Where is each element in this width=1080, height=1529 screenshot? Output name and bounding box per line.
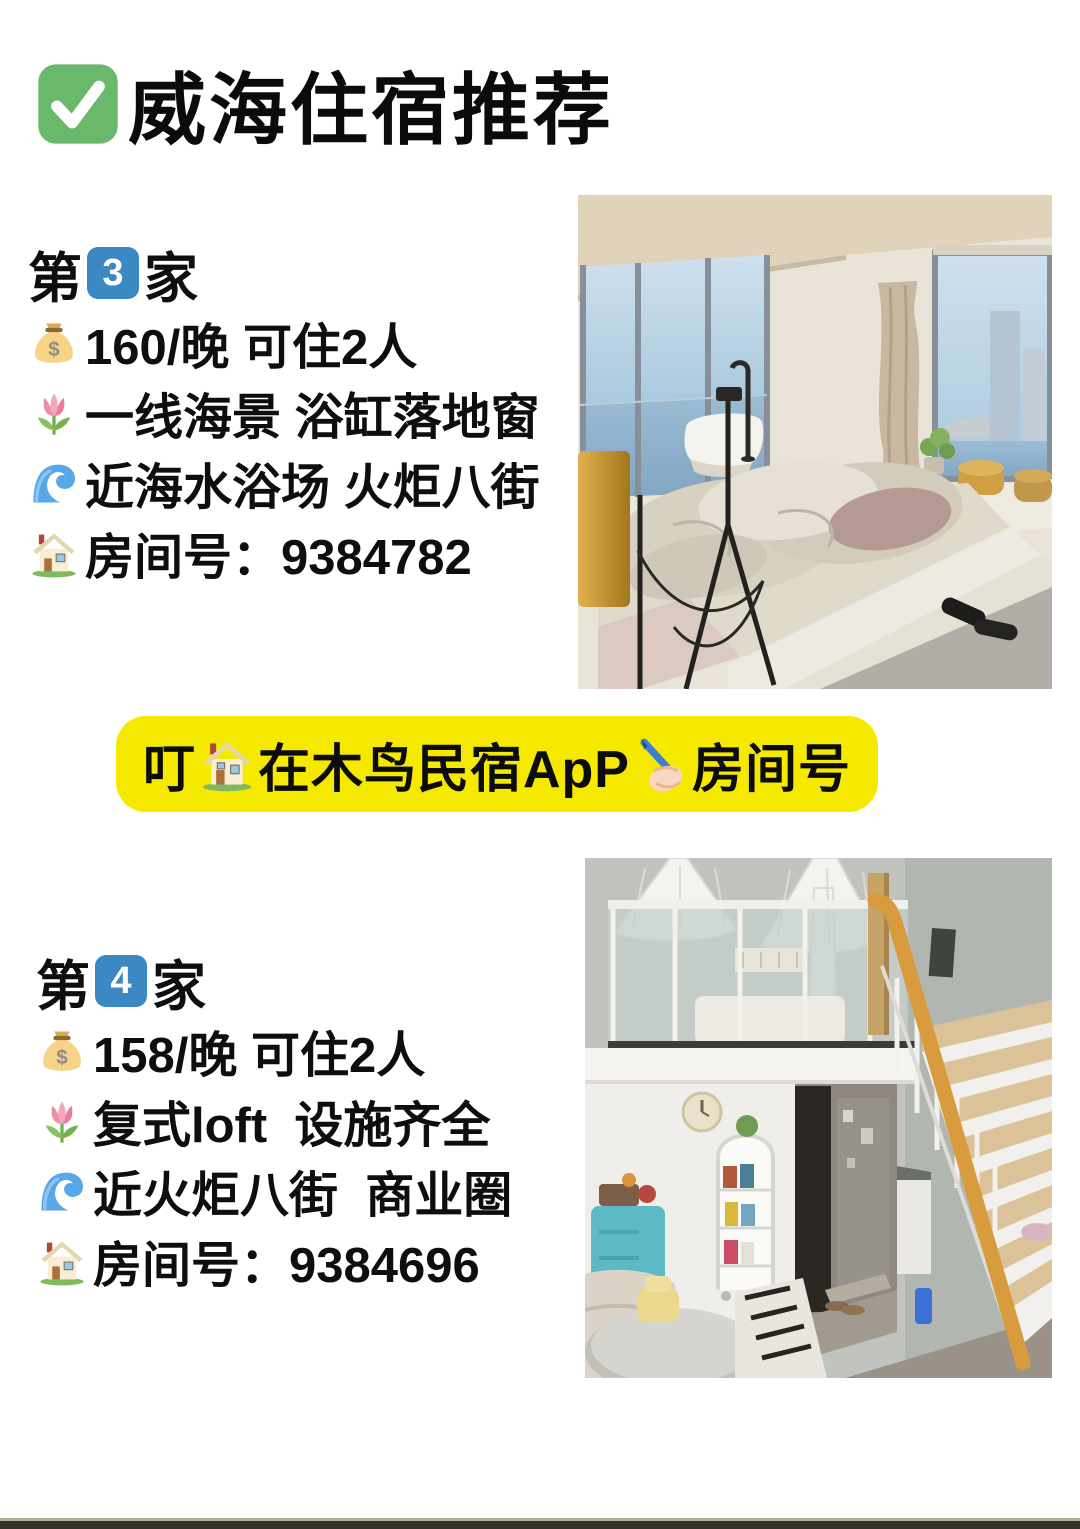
banner-text-1: 叮 <box>143 727 196 802</box>
tulip-icon <box>28 387 80 439</box>
book-cart <box>718 1115 773 1301</box>
app-banner: 叮 在木鸟民宿ApP 房间号 <box>116 716 878 812</box>
svg-text:$: $ <box>48 338 60 361</box>
loft-apartment-illustration <box>585 858 1052 1378</box>
money-bag-icon: $ <box>28 317 80 369</box>
listing-1-price-line: $ 160/晚 可住2人 <box>28 308 540 378</box>
listing-2-feature-line: 复式loft 设施齐全 <box>36 1086 512 1156</box>
wave-icon <box>36 1165 88 1217</box>
page-title: 威海住宿推荐 <box>36 52 614 156</box>
banner-text-3: 房间号 <box>692 727 851 802</box>
banner-text-2: 在木鸟民宿ApP <box>258 727 630 802</box>
svg-text:$: $ <box>56 1046 68 1069</box>
heading-prefix: 第 <box>36 942 90 1021</box>
listing-2-location-line: 近火炬八街 商业圈 <box>36 1156 512 1226</box>
pink-cushion <box>1021 1223 1052 1241</box>
listing-1-room-line: 房间号：9384782 <box>28 518 540 588</box>
heading-suffix: 家 <box>144 234 198 313</box>
page-title-text: 威海住宿推荐 <box>128 48 614 160</box>
house-icon <box>198 735 256 793</box>
poster-page: 威海住宿推荐 第 3 家 $ 160/晚 可住2人 <box>0 0 1080 1529</box>
listing-2-room-line: 房间号：9384696 <box>36 1226 512 1296</box>
curtain <box>878 281 920 473</box>
money-bag-icon: $ <box>36 1025 88 1077</box>
listing-2-price-line: $ 158/晚 可住2人 <box>36 1016 512 1086</box>
listing-2-text: 第 4 家 $ 158/晚 可住2人 复式loft 设施齐全 <box>36 946 512 1296</box>
listing-1-photo <box>578 195 1052 689</box>
right-window <box>933 245 1052 479</box>
heading-suffix: 家 <box>152 942 206 1021</box>
teal-cabinet <box>591 1173 665 1284</box>
loft-fascia <box>585 1048 915 1082</box>
house-icon <box>36 1235 88 1287</box>
check-mark-icon <box>36 62 120 146</box>
wave-icon <box>28 457 80 509</box>
listing-2-heading: 第 4 家 <box>36 946 512 1016</box>
wall-clock <box>683 1093 721 1131</box>
listing-1-location-line: 近海水浴场 火炬八街 <box>28 448 540 518</box>
listing-1-text: 第 3 家 $ 160/晚 可住2人 一线海景 浴缸落地窗 <box>28 238 540 588</box>
keycap-4-icon: 4 <box>95 955 147 1007</box>
sea-view-bedroom-illustration <box>578 195 1052 689</box>
listing-1-heading: 第 3 家 <box>28 238 540 308</box>
picture-frame <box>929 928 956 978</box>
writing-hand-icon <box>632 735 690 793</box>
listing-1-feature-line: 一线海景 浴缸落地窗 <box>28 378 540 448</box>
house-icon <box>28 527 80 579</box>
heading-prefix: 第 <box>28 234 82 313</box>
bottom-bar <box>0 1521 1080 1529</box>
listing-2-photo <box>585 858 1052 1378</box>
tulip-icon <box>36 1095 88 1147</box>
keycap-3-icon: 3 <box>87 247 139 299</box>
